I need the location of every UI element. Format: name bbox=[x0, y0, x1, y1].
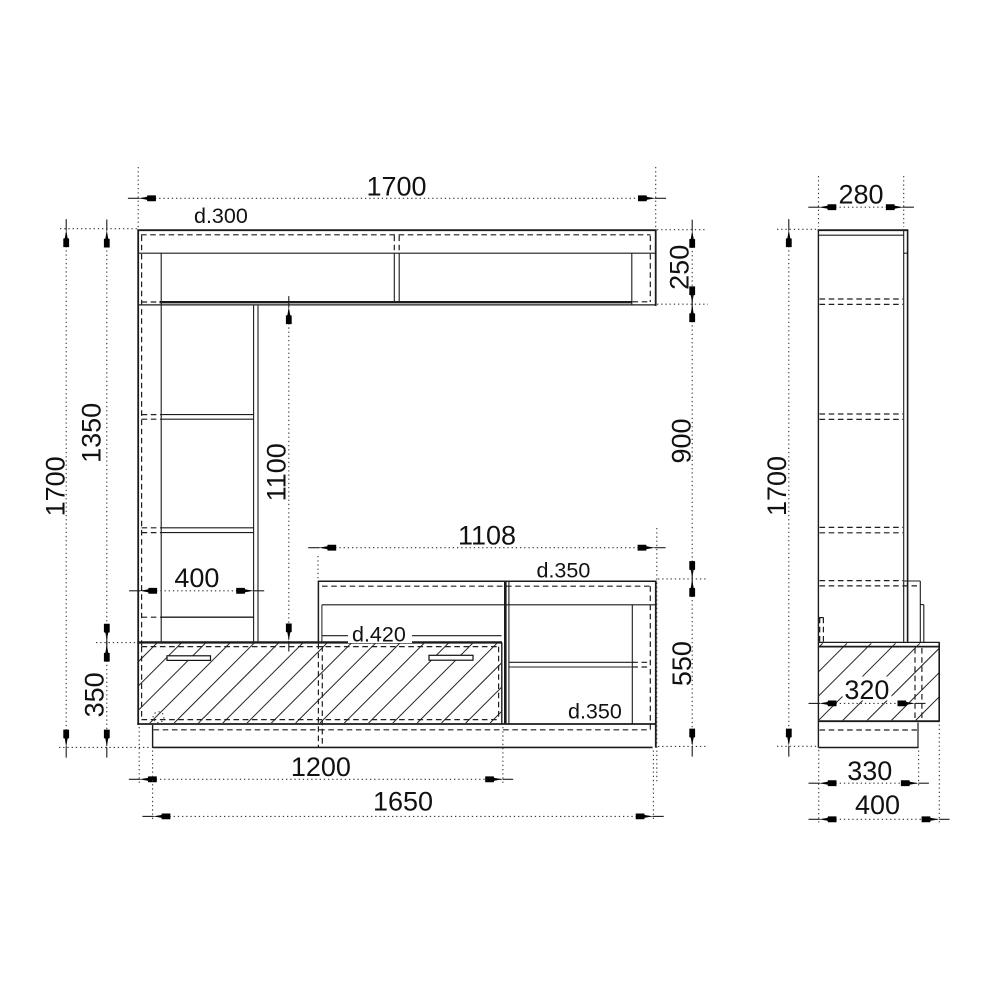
svg-text:280: 280 bbox=[838, 179, 883, 209]
svg-text:d.350: d.350 bbox=[537, 558, 591, 582]
svg-text:550: 550 bbox=[667, 641, 697, 686]
svg-text:d.420: d.420 bbox=[352, 623, 406, 647]
svg-text:900: 900 bbox=[666, 418, 696, 463]
svg-text:330: 330 bbox=[847, 756, 892, 786]
svg-text:320: 320 bbox=[844, 675, 889, 705]
svg-text:d.350: d.350 bbox=[568, 699, 622, 723]
svg-text:1350: 1350 bbox=[76, 403, 106, 463]
svg-text:400: 400 bbox=[855, 790, 900, 820]
svg-text:1650: 1650 bbox=[373, 787, 433, 817]
svg-text:250: 250 bbox=[664, 245, 694, 290]
svg-text:d.300: d.300 bbox=[194, 204, 248, 228]
svg-text:1700: 1700 bbox=[40, 456, 70, 516]
svg-text:350: 350 bbox=[80, 672, 110, 717]
svg-text:1108: 1108 bbox=[458, 520, 516, 550]
svg-text:1200: 1200 bbox=[291, 752, 351, 782]
svg-text:1700: 1700 bbox=[762, 456, 792, 516]
svg-text:400: 400 bbox=[174, 563, 219, 593]
svg-text:1700: 1700 bbox=[366, 171, 426, 201]
svg-text:1100: 1100 bbox=[262, 443, 292, 501]
